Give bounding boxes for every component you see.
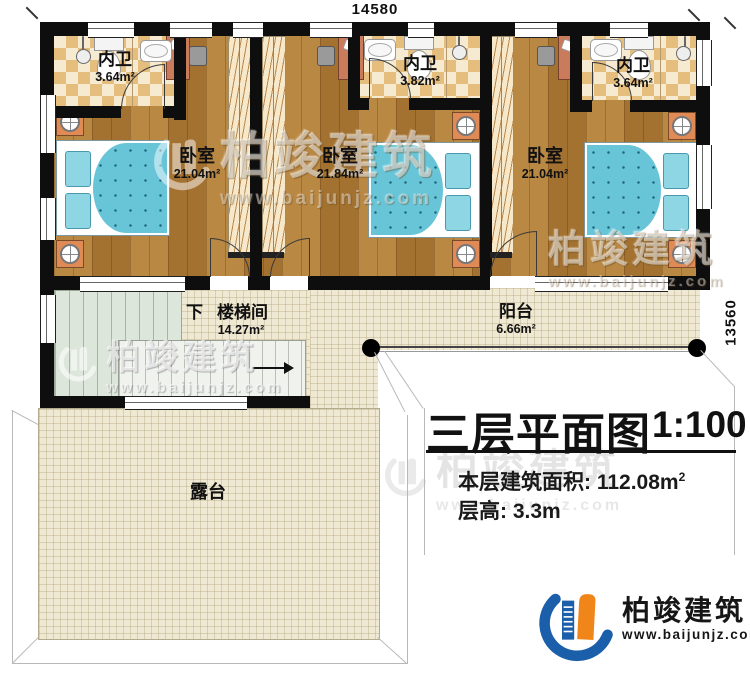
window bbox=[310, 22, 352, 38]
room-label-bed3: 卧室 21.04m² bbox=[505, 146, 585, 181]
nightstand bbox=[56, 240, 84, 268]
window bbox=[535, 276, 668, 292]
balcony-rail bbox=[371, 346, 699, 348]
room-area: 3.64m² bbox=[593, 76, 673, 90]
window bbox=[40, 295, 56, 343]
wall-segment bbox=[480, 36, 492, 276]
brand-logo: 柏竣建筑 www.baijunjz.com bbox=[534, 586, 750, 664]
pillow bbox=[445, 153, 471, 189]
nightstand bbox=[452, 112, 480, 140]
stair-direction-line bbox=[252, 367, 284, 369]
window bbox=[515, 22, 557, 38]
wall-segment bbox=[174, 36, 186, 120]
dimension-tick bbox=[26, 7, 39, 20]
pillow bbox=[663, 153, 689, 189]
nightstand bbox=[668, 112, 696, 140]
room-area: 6.66m² bbox=[476, 322, 556, 336]
dimension-tick bbox=[688, 9, 701, 22]
wall-segment bbox=[54, 106, 121, 118]
wall-segment bbox=[40, 396, 125, 408]
room-label-bed2: 卧室 21.84m² bbox=[300, 146, 380, 181]
balcony-rail bbox=[371, 351, 699, 352]
chair bbox=[317, 46, 335, 66]
room-name: 露台 bbox=[168, 482, 248, 503]
room-name: 阳台 bbox=[476, 302, 556, 322]
floor-area-label: 本层建筑面积: bbox=[458, 471, 591, 494]
chair bbox=[537, 46, 555, 66]
wardrobe bbox=[490, 36, 514, 254]
outline-line bbox=[407, 415, 408, 663]
nightstand bbox=[452, 240, 480, 268]
brand-url: www.baijunjz.com bbox=[622, 627, 750, 642]
stair-direction-arrow bbox=[284, 362, 294, 374]
room-name: 内卫 bbox=[75, 50, 155, 70]
outline-line bbox=[12, 663, 408, 664]
chair bbox=[189, 46, 207, 66]
dimension-top: 14580 bbox=[340, 1, 410, 18]
stair-direction: 下 bbox=[186, 303, 203, 323]
room-area: 3.82m² bbox=[380, 74, 460, 88]
window bbox=[610, 22, 648, 38]
room-label-stair: 下 楼梯间 14.27m² bbox=[162, 303, 292, 337]
room-label-bath2: 内卫 3.82m² bbox=[380, 54, 460, 88]
room-label-balcony: 阳台 6.66m² bbox=[476, 302, 556, 336]
pillow bbox=[65, 193, 91, 229]
floor-height-line: 层高: 3.3m bbox=[458, 495, 561, 525]
wardrobe bbox=[262, 36, 286, 254]
bed-pillow-zone bbox=[443, 145, 477, 235]
outline-line bbox=[700, 350, 734, 387]
brand-company: 柏竣建筑 bbox=[622, 596, 750, 627]
wall-segment bbox=[40, 276, 80, 290]
floor-area-value: 112.08m bbox=[597, 471, 679, 494]
title-underline bbox=[426, 450, 736, 453]
bed-blanket bbox=[93, 143, 167, 233]
room-area: 21.04m² bbox=[505, 167, 585, 181]
room-name: 卧室 bbox=[157, 146, 237, 167]
shower-icon bbox=[676, 46, 691, 61]
room-label-bath1: 内卫 3.64m² bbox=[75, 50, 155, 84]
shower-icon bbox=[82, 36, 84, 50]
bed bbox=[56, 140, 170, 236]
outline-line bbox=[377, 637, 407, 664]
floor-area-line: 本层建筑面积: 112.08m2 bbox=[458, 466, 685, 496]
watermark-logo-icon bbox=[382, 448, 428, 504]
room-name: 卧室 bbox=[505, 146, 585, 167]
room-area: 3.64m² bbox=[75, 70, 155, 84]
wall-segment bbox=[248, 276, 270, 290]
window bbox=[696, 40, 712, 86]
wall-segment bbox=[668, 276, 710, 290]
dimension-tick bbox=[724, 17, 737, 30]
wardrobe bbox=[228, 36, 252, 254]
floor-height-value: 3.3m bbox=[513, 500, 561, 523]
window bbox=[696, 145, 712, 209]
outline-line bbox=[12, 637, 39, 664]
outline-line bbox=[12, 410, 13, 664]
window bbox=[80, 276, 185, 292]
bed-blanket bbox=[587, 145, 661, 235]
room-area: 14.27m² bbox=[162, 323, 292, 337]
room-label-terrace: 露台 bbox=[168, 482, 248, 503]
floor-area-sup: 2 bbox=[679, 470, 686, 484]
brand-logo-icon bbox=[534, 586, 616, 664]
wall-segment bbox=[250, 36, 262, 276]
bed-pillow-zone bbox=[59, 143, 93, 233]
pillow bbox=[445, 195, 471, 231]
outline-line bbox=[424, 408, 425, 555]
window bbox=[170, 22, 212, 38]
wall-segment bbox=[348, 36, 360, 110]
pillow bbox=[65, 151, 91, 187]
balcony-post bbox=[362, 339, 380, 357]
room-area: 21.84m² bbox=[300, 167, 380, 181]
floor-plan: 14580 13560 bbox=[0, 0, 750, 676]
wall-segment bbox=[582, 100, 592, 112]
dimension-right: 13560 bbox=[723, 292, 740, 354]
window bbox=[233, 22, 263, 38]
room-name: 卧室 bbox=[300, 146, 380, 167]
drawing-scale: 1:100 bbox=[652, 404, 747, 446]
room-name: 楼梯间 bbox=[217, 303, 268, 323]
bed bbox=[584, 142, 698, 238]
floor-height-label: 层高: bbox=[458, 500, 507, 523]
window bbox=[40, 95, 56, 153]
wall-segment bbox=[247, 396, 310, 408]
room-area: 21.04m² bbox=[157, 167, 237, 181]
wall-segment bbox=[570, 36, 582, 112]
nightstand bbox=[668, 240, 696, 268]
room-name: 内卫 bbox=[593, 56, 673, 76]
outline-line bbox=[384, 351, 423, 409]
pillow bbox=[663, 195, 689, 231]
window bbox=[88, 22, 134, 38]
bed bbox=[368, 142, 480, 238]
wall-segment bbox=[630, 100, 696, 112]
terrace-floor bbox=[38, 408, 380, 640]
stair-lower-flight bbox=[118, 340, 306, 400]
room-label-bath3: 内卫 3.64m² bbox=[593, 56, 673, 90]
wall-segment bbox=[409, 98, 480, 110]
wall-segment bbox=[308, 276, 490, 290]
passage-floor bbox=[310, 348, 378, 408]
window bbox=[408, 22, 434, 38]
window bbox=[125, 396, 247, 410]
room-name: 内卫 bbox=[380, 54, 460, 74]
window bbox=[40, 198, 56, 240]
bed-pillow-zone bbox=[661, 145, 695, 235]
bed-blanket bbox=[371, 145, 443, 235]
wall-segment bbox=[360, 98, 369, 110]
outline-line bbox=[12, 410, 39, 425]
wall-segment bbox=[185, 276, 210, 290]
room-label-bed1: 卧室 21.04m² bbox=[157, 146, 237, 181]
